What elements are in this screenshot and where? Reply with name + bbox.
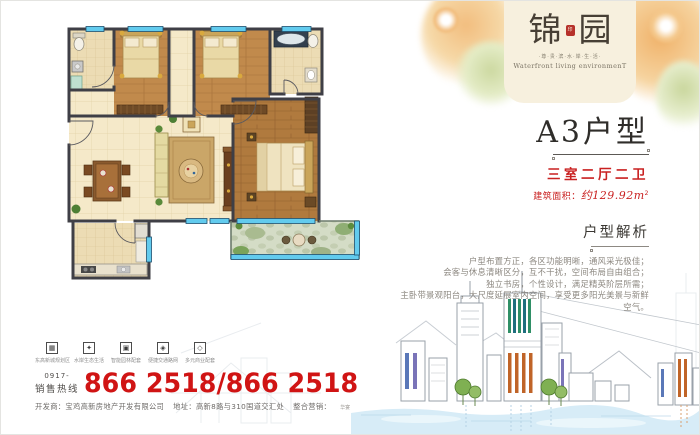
logo-char-right: 园 [579,13,612,47]
feature-item: ◈ 便捷交通路网 [146,342,180,364]
red-seal-icon: 印 [566,25,575,36]
marketing-logo: 华宴 [340,404,350,411]
brand-tagline-en: Waterfront living environmenT [504,62,636,70]
brand-tagline: ·尊·贵·滨·水·岸·生·活· [504,53,636,60]
hotline-label: 销售热线 [35,381,79,395]
feature-label: 东高新城规划区 [35,357,69,364]
hallway-floor [69,90,114,118]
phone-number[interactable]: 866 2518/866 2518 [84,368,358,399]
business-icon: ◇ [194,342,206,354]
wardrobe-2 [221,105,267,114]
toilet-2-icon [308,35,318,48]
unit-layout: 三室二厅二卫 [399,163,649,183]
analysis-line: 会客与休息清晰区分，互不干扰，空间布局自由组合； [399,267,649,278]
feature-label: 智能园林配套 [109,357,143,364]
analysis-line: 户型布置方正，各区功能明晰，通风采光极佳； [399,256,649,267]
flyer-page: 锦 印 园 ·尊·贵·滨·水·岸·生·活· Waterfront living … [0,0,700,435]
brand-logo: 锦 印 园 [504,13,636,47]
unit-area: 建筑面积：约129.92m2 [399,187,649,203]
unit-info: A3户型 三室二厅二卫 建筑面积：约129.92m2 户型解析 户型布置方正，各… [399,117,649,313]
traffic-icon: ◈ [157,342,169,354]
fridge-icon [135,224,148,238]
divider [553,154,649,155]
feature-label: 便捷交通路网 [146,357,180,364]
analysis-line: 主卧带景观阳台，大尺度延展室内空间，享受更多阳光美景与新鲜空气。 [399,290,649,313]
feature-list: ▦ 东高新城规划区 ✦ 水岸生态生活 ▣ 智能园林配套 ◈ 便捷交通路网 ◇ 多… [35,342,217,364]
flower-decoration [649,9,683,43]
feature-item: ▦ 东高新城规划区 [35,342,69,364]
area-label: 建筑面积： [533,192,581,202]
garden-icon: ▣ [120,342,132,354]
unit-title: A3户型 [399,117,649,149]
master-bed [257,141,313,193]
feature-label: 水岸生态生活 [72,357,106,364]
eco-waterfront-icon: ✦ [83,342,95,354]
balcony-shrub [245,227,265,239]
plant-icon [72,205,81,214]
area-value: 约129.92m [581,189,645,202]
analysis-text: 户型布置方正，各区功能明晰，通风采光极佳； 会客与休息清晰区分，互不干扰，空间布… [399,256,649,313]
analysis-heading: 户型解析 [399,221,649,242]
feature-item: ▣ 智能园林配套 [109,342,143,364]
feature-item: ✦ 水岸生态生活 [72,342,106,364]
sales-hotline: 0917- 销售热线 866 2518/866 2518 [35,368,376,399]
marketing-label: 整合营销： [293,402,331,412]
corridor-floor [169,29,194,116]
toilet-icon [73,33,85,51]
bed-1 [120,31,163,79]
bed-2 [200,31,243,79]
area-code: 0917- [35,372,79,380]
analysis-line: 独立书房，个性设计，满足精英阶层所需； [399,279,649,290]
flower-decoration [433,7,459,33]
feature-label: 多元商业配套 [183,357,217,364]
developer-text: 开发商：宝鸡高新房地产开发有限公司 [35,402,164,412]
sofa-set [155,125,168,205]
brand-panel: 锦 印 园 ·尊·贵·滨·水·岸·生·活· Waterfront living … [504,1,636,103]
divider [591,246,649,247]
master-chair [305,197,316,207]
floorplan-drawing [59,21,369,283]
wardrobe-1 [117,105,163,114]
address-text: 地址：高新8路与310国道交汇处 [173,402,284,412]
city-district-icon: ▦ [46,342,58,354]
feature-item: ◇ 多元商业配套 [183,342,217,364]
logo-char-left: 锦 [529,13,562,47]
footer-info: 开发商：宝鸡高新房地产开发有限公司 地址：高新8路与310国道交汇处 整合营销：… [35,402,350,412]
rug [169,137,214,203]
hotline-prefix: 0917- 销售热线 [35,372,79,395]
flower-decoration [656,61,700,131]
shower-icon [71,76,82,89]
kitchen-counter [74,264,147,275]
